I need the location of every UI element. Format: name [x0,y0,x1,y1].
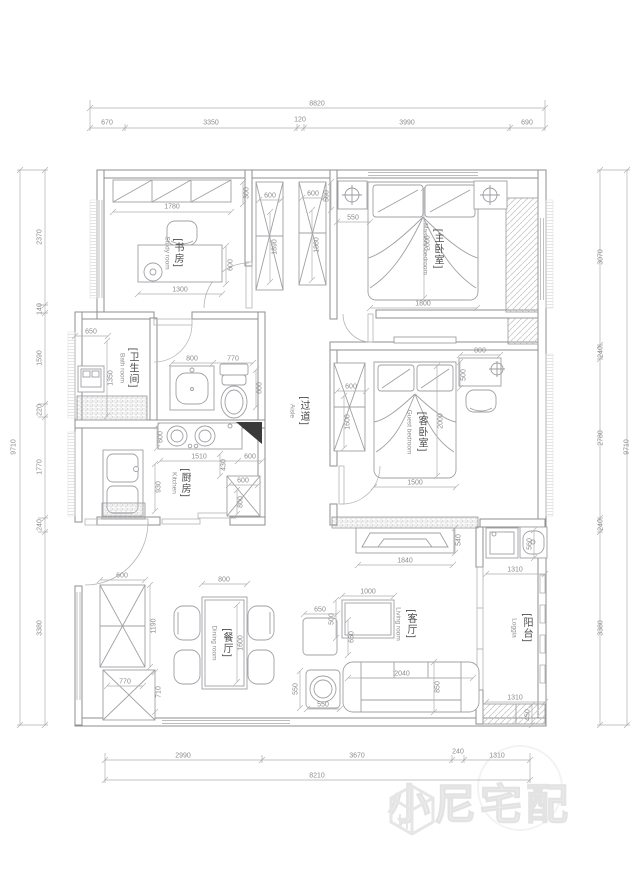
dim-guest-wardrobe-h: 1600 [345,414,352,430]
brand-cube-icon [388,784,436,836]
study-door-leaf [246,262,252,308]
dim-kitchen-off2: 930 [156,481,163,493]
master-door-arc [343,314,371,342]
dim-stool-w: 550 [317,702,329,709]
dim-dining-cab1-w: 600 [116,573,128,580]
bath-door-leaf [154,319,192,325]
dim-tv-w: 1840 [397,558,413,565]
room-label-balcony-cn: [阳台] [521,613,531,643]
dim-bottom-1: 3670 [349,753,365,760]
guest-wardrobe [334,363,365,451]
room-label-living-cn: [客厅] [405,609,415,639]
dim-vanity-d: 600 [257,382,264,394]
dim-master-bed-w: 1800 [415,301,431,308]
guest-door-leaf [339,466,344,504]
floor-plan-sheet: { "labels": { "study": {"cn": "[书房]", "e… [0,0,640,893]
balcony-washer [486,528,518,558]
dim-right-3: 240 [598,519,605,531]
dim-fridge-w: 600 [237,478,249,485]
room-label-balcony-en: Loggia [510,618,517,638]
dim-dining-cab2-h: 710 [156,686,163,698]
dim-side-d: 650 [349,631,356,643]
dim-left-3: 220 [37,404,44,416]
dining-cabinet-1 [100,585,145,667]
dim-study-desk-d: 600 [228,259,235,271]
dim-right-2: 2780 [598,430,605,446]
dim-right-1: 240 [598,346,605,358]
dim-coffee-d: 500 [329,613,336,625]
dim-study-wardrobe-d: 300 [244,187,251,199]
master-door-leaf [368,314,373,342]
room-label-aisle-en: Aisle [288,404,295,418]
dim-study-wardrobe-w: 1780 [164,204,180,211]
room-label-dining-en: Dining room [210,625,217,660]
room-label-bath-cn: [卫生间] [127,348,137,389]
dim-coffee-w: 1000 [360,589,376,596]
dim-balcony-hatch: 450 [525,709,532,721]
dim-fridge-d: 800 [238,496,245,508]
kitchen-dot [228,424,232,428]
dim-left-4: 1770 [37,459,44,475]
study-wardrobe [113,180,231,202]
balcony-sink [520,527,547,558]
dim-study-desk-w: 1300 [172,287,188,294]
dim-top-3: 3990 [399,120,415,127]
room-label-study-cn: [书房] [172,238,182,268]
room-label-kitchen-en: Kitchen [170,472,177,494]
room-label-kitchen-cn: [厨房] [179,468,189,498]
chain-left-total [17,167,23,728]
dim-left-1: 140 [37,303,44,315]
watermark: 小尼宅配 [388,784,572,826]
dim-balcony-bot-w: 1310 [507,695,523,702]
room-label-aisle-cn: [过道] [298,396,308,426]
dim-kitchen-r: 600 [244,454,256,461]
shower-floor [77,396,147,420]
dim-top-total: 8820 [309,101,325,108]
dim-closet2-h: 1860 [314,237,321,253]
room-label-guest-en: Guest bedroom [405,410,412,455]
dim-master-nightstand: 500 [324,190,331,202]
dim-closet1-h: 1890 [272,239,279,255]
room-label-guest-cn: [客卧室] [416,412,426,453]
room-label-study-en: Study room [163,236,170,269]
chain-left-segments [17,167,48,728]
tv-cabinet [356,528,454,553]
dim-right-0: 3070 [598,249,605,265]
dim-kitchen-w: 1510 [191,454,207,461]
dining-cabinet-2 [103,670,155,720]
dim-guest-bed-l: 2000 [438,413,445,429]
balcony-floor-hatch [483,704,545,724]
dim-bottom-3: 1310 [489,753,505,760]
dim-master-gap: 550 [347,215,359,222]
dim-guest-desk-w: 800 [474,348,486,355]
dim-left-total: 9710 [11,439,18,455]
dim-guest-desk-d: 500 [461,369,468,381]
dim-top-0: 670 [101,120,113,127]
dim-left-5: 240 [37,519,44,531]
dim-bath-l: 1350 [108,370,115,386]
dim-dining-cab1-h: 1190 [151,618,158,633]
kitchen-slide-door-a [162,519,200,524]
floor-plan-canvas [0,0,640,893]
room-label-dining-cn: [餐厅] [221,628,231,658]
dim-left-0: 2370 [37,229,44,245]
dim-right-4: 3380 [598,620,605,636]
dim-kitchen-off1: 430 [221,459,228,471]
room-label-bath-en: Bath room [118,353,125,383]
dim-tv-d: 540 [456,534,463,546]
bath-washer [78,366,104,392]
study-lamp-inner [150,269,156,275]
dim-sofa-d: 850 [435,681,442,693]
dim-table-w: 800 [218,577,230,584]
dim-dining-cab2-w: 770 [119,679,131,686]
dim-counter-d: 600 [158,431,165,443]
dim-bottom-0: 2990 [175,753,191,760]
dim-left-6: 3380 [37,620,44,636]
dim-closet1-w: 600 [264,193,276,200]
dim-right-total: 9710 [624,439,631,455]
dim-side-w: 650 [314,607,326,614]
dim-top-2: 120 [294,117,306,124]
toilet [220,364,248,418]
dim-toilet-w: 770 [227,356,239,363]
room-label-living-en: Living room [394,607,401,641]
dim-bath-w: 650 [85,329,97,336]
dim-closet2-w: 600 [307,191,319,198]
dim-guest-bed-w: 1500 [407,480,423,487]
dim-vanity-w: 800 [186,356,198,363]
kitchen-floor-hatch [102,503,145,519]
dim-balcony-top-w: 1310 [507,567,523,574]
room-label-master-cn: [主卧室] [432,229,442,270]
dim-balcony-sink-d: 560 [527,538,534,550]
dim-table-l: 1600 [238,635,245,651]
dim-bottom-2: 240 [452,749,464,756]
dim-sofa-w: 2040 [394,671,410,678]
dim-bottom-total: 8210 [309,773,325,780]
dim-left-2: 1590 [37,350,44,366]
room-label-master-en: Masters' bedroom [421,223,428,275]
dim-top-1: 3350 [203,120,219,127]
dim-stool-d: 550 [293,683,300,695]
dim-top-4: 690 [521,120,533,127]
dim-guest-wardrobe-w: 600 [345,384,357,391]
guest-wall-shelf [394,337,456,343]
sofa [343,662,479,712]
vanity-sink [170,366,214,410]
